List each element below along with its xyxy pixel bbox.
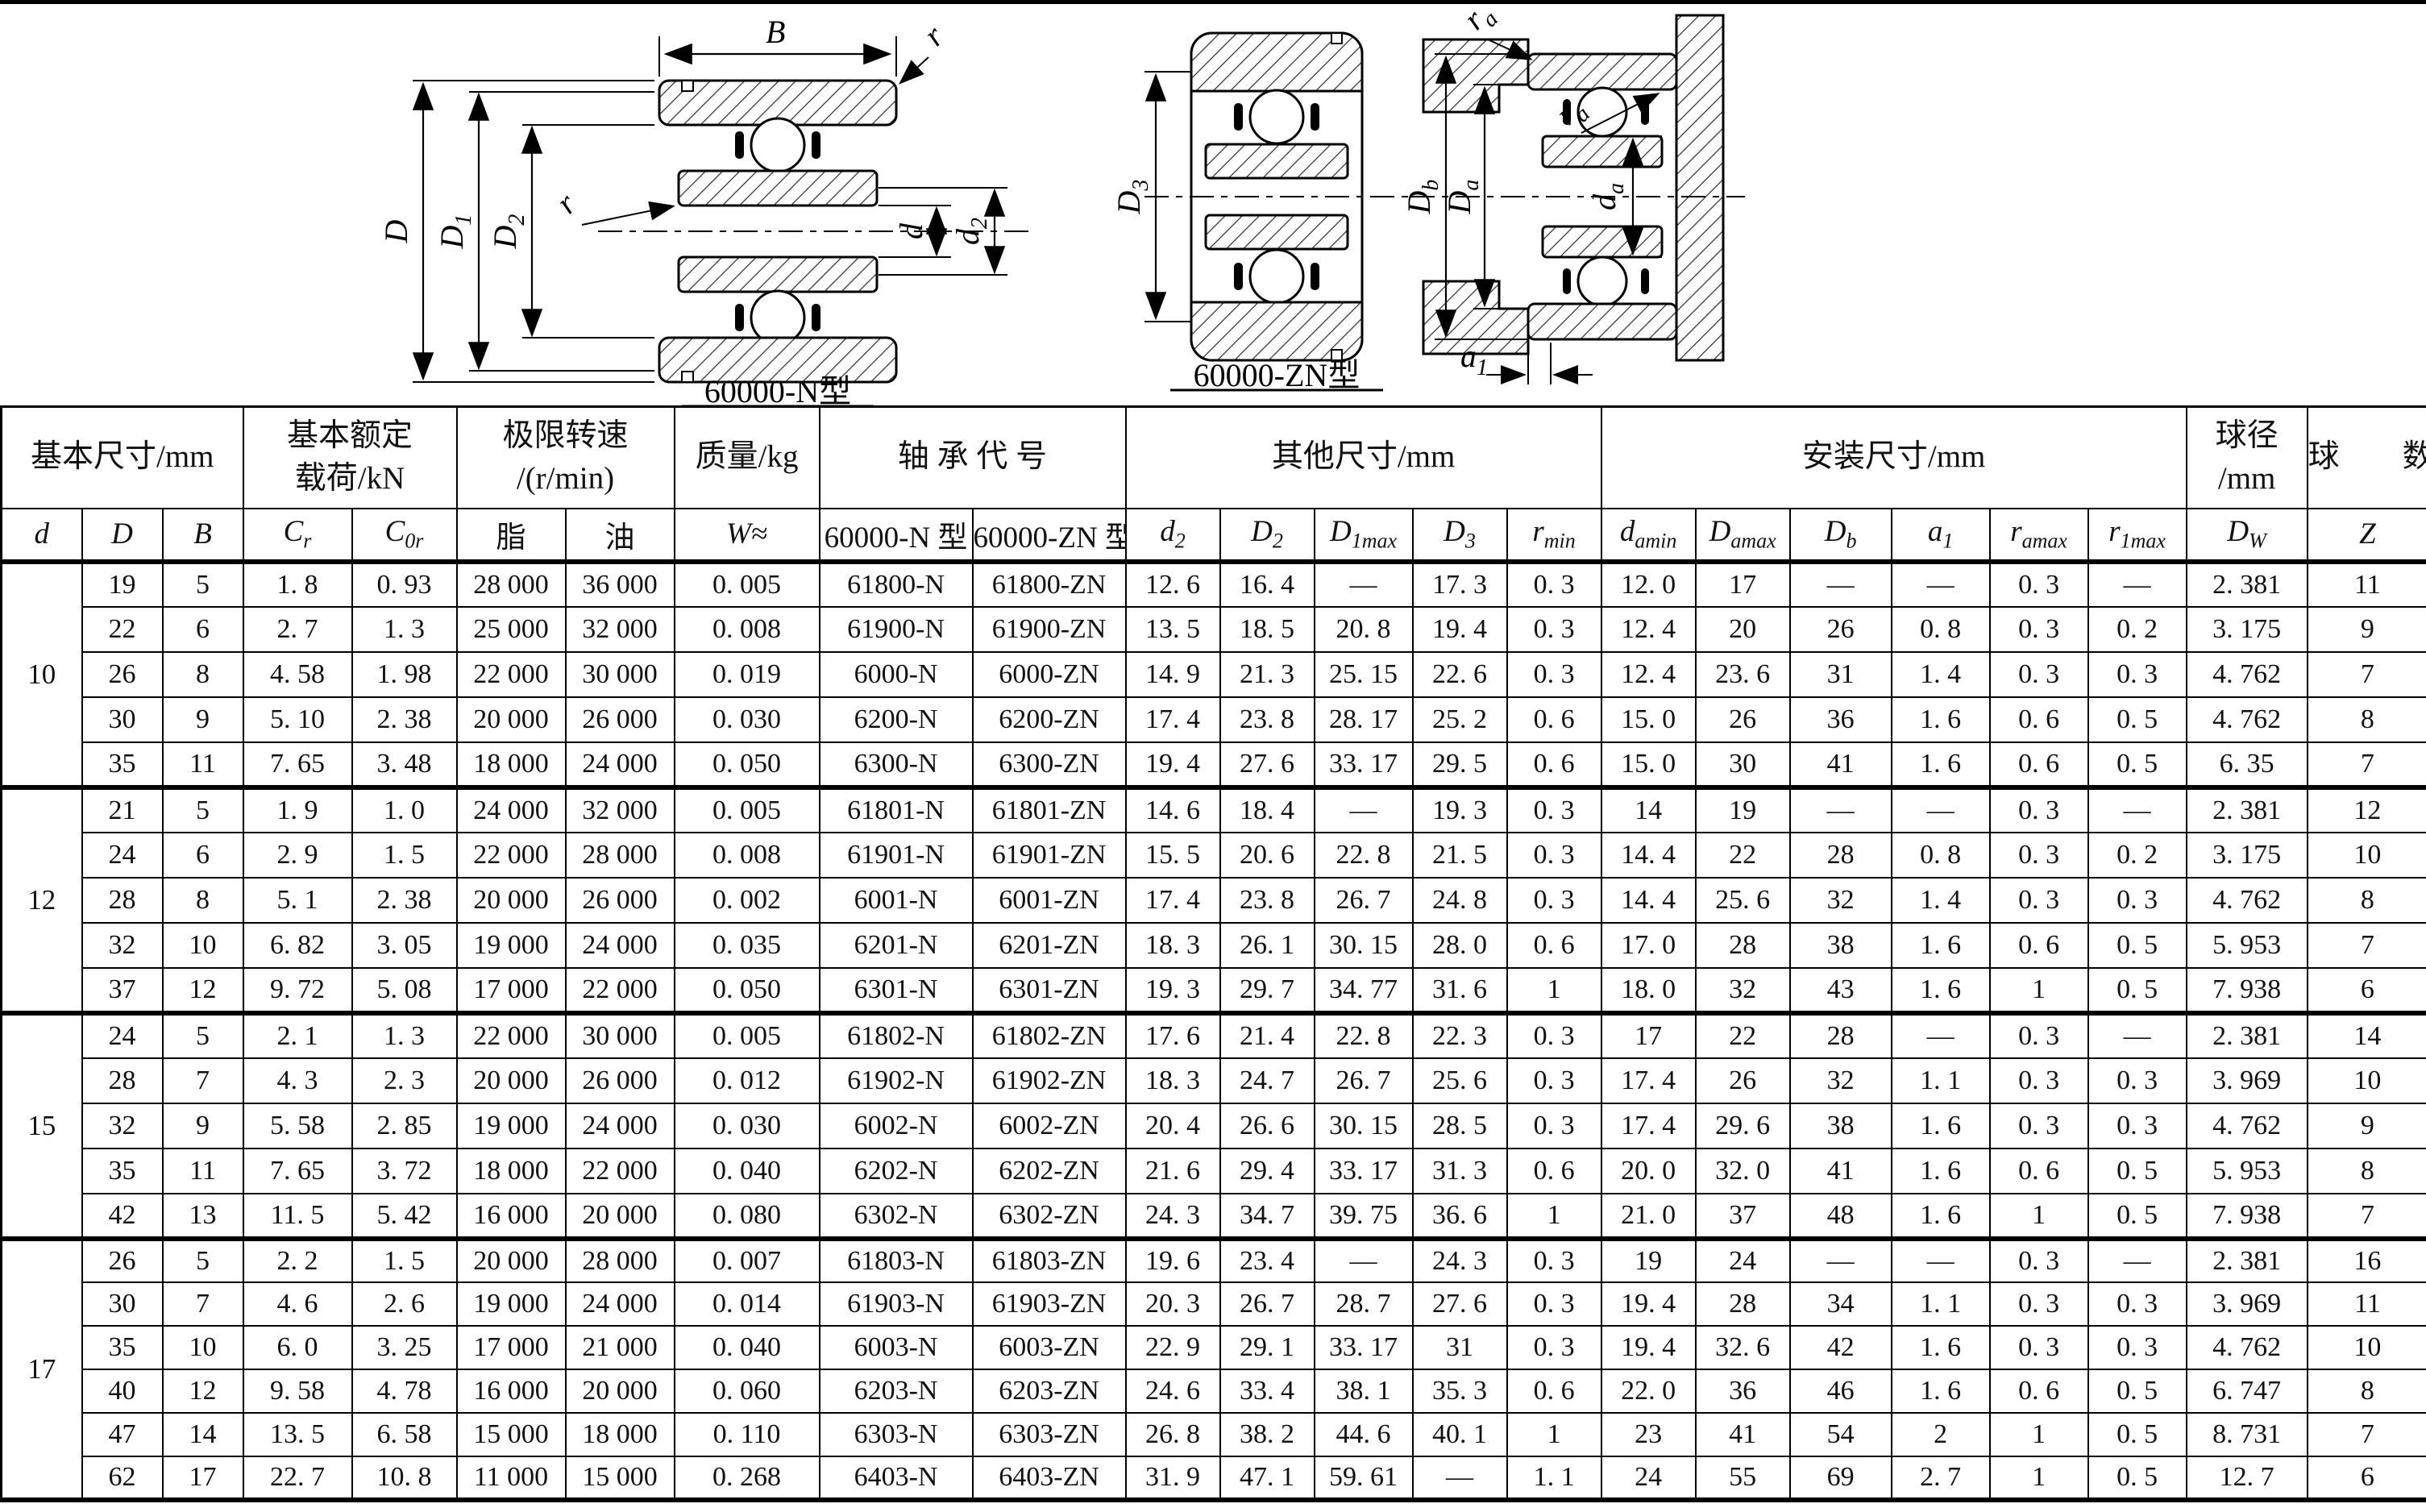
cell: 4. 762 <box>2187 697 2308 742</box>
cell: 22 <box>1696 833 1790 878</box>
column-header-cell: ramax <box>1990 509 2088 562</box>
cell: 9. 72 <box>243 968 352 1013</box>
cell: 0. 5 <box>2088 697 2187 742</box>
cell: 1. 6 <box>1892 968 1990 1013</box>
cell: 12 <box>2308 787 2426 833</box>
cell: 61901-ZN <box>973 833 1126 878</box>
column-header-cell: DW <box>2187 509 2308 562</box>
group-header-cell: 其他尺寸/mm <box>1126 407 1601 509</box>
cell: 7. 938 <box>2187 1194 2308 1239</box>
column-header-cell: d2 <box>1126 509 1220 562</box>
cell: 0. 6 <box>1990 923 2088 968</box>
cell: 12. 7 <box>2187 1456 2308 1500</box>
cell: 29. 7 <box>1220 968 1315 1013</box>
cell: 40 <box>82 1369 163 1413</box>
cell: 61801-N <box>820 787 973 833</box>
cell: 17. 0 <box>1601 923 1696 968</box>
cell: 69 <box>1790 1456 1892 1500</box>
cell: 32 <box>82 1103 163 1149</box>
cell: 3. 05 <box>352 923 457 968</box>
cell: 17. 3 <box>1413 562 1507 607</box>
cell: 36 <box>1696 1369 1790 1413</box>
cell: 20 000 <box>457 1239 566 1282</box>
cell: 20 000 <box>566 1194 675 1239</box>
table-row: 471413. 56. 5815 00018 0000. 1106303-N63… <box>2 1413 2426 1456</box>
cell: 0. 008 <box>675 607 820 652</box>
cell: 20 000 <box>566 1369 675 1413</box>
cell: 0. 3 <box>1507 652 1601 697</box>
cell: 37 <box>82 968 163 1013</box>
cell: 0. 035 <box>675 923 820 968</box>
cell: 21. 5 <box>1413 833 1507 878</box>
cell: 26. 1 <box>1220 923 1315 968</box>
cell: 22 000 <box>457 833 566 878</box>
cell: 55 <box>1696 1456 1790 1500</box>
cell: 33. 4 <box>1220 1369 1315 1413</box>
cell: 0. 3 <box>1990 833 2088 878</box>
column-header-cell: 60000-ZN 型 <box>973 509 1126 562</box>
cell: 21 000 <box>566 1326 675 1369</box>
group-header-cell: 轴 承 代 号 <box>820 407 1126 509</box>
cell: 1. 98 <box>352 652 457 697</box>
cell: 10. 8 <box>352 1456 457 1500</box>
cell: 2 <box>1892 1413 1990 1456</box>
cell: 1 <box>1990 968 2088 1013</box>
column-header-cell: Db <box>1790 509 1892 562</box>
cell: 14 <box>163 1413 243 1456</box>
cell: 29. 5 <box>1413 742 1507 787</box>
cell: 16 <box>2308 1239 2426 1282</box>
group-header-cell: 基本尺寸/mm <box>2 407 243 509</box>
cell: 1. 6 <box>1892 1326 1990 1369</box>
cell: 26. 7 <box>1315 1058 1413 1103</box>
cell: 6403-ZN <box>973 1456 1126 1500</box>
cell: 25. 2 <box>1413 697 1507 742</box>
cell: 9 <box>2308 1103 2426 1149</box>
cell: 21. 6 <box>1126 1149 1220 1194</box>
cell: 0. 3 <box>1507 607 1601 652</box>
cell: 18 000 <box>457 1149 566 1194</box>
cell: 21. 0 <box>1601 1194 1696 1239</box>
cell: 0. 6 <box>1990 697 2088 742</box>
cell: 0. 8 <box>1892 607 1990 652</box>
cell: 61803-ZN <box>973 1239 1126 1282</box>
cell: 5. 10 <box>243 697 352 742</box>
cell: 1. 5 <box>352 1239 457 1282</box>
cell: 23. 8 <box>1220 878 1315 923</box>
cell: 28. 5 <box>1413 1103 1507 1149</box>
cell: 14. 4 <box>1601 878 1696 923</box>
cell: 6001-N <box>820 878 973 923</box>
cell: 29. 6 <box>1696 1103 1790 1149</box>
cell: 20. 0 <box>1601 1149 1696 1194</box>
column-header-cell: C0r <box>352 509 457 562</box>
cell: 31 <box>1413 1326 1507 1369</box>
cell: 62 <box>82 1456 163 1500</box>
cell: 28 000 <box>566 833 675 878</box>
cell: 0. 6 <box>1507 742 1601 787</box>
cell: 18. 4 <box>1220 787 1315 833</box>
dim-ra-top-label: ra <box>1456 4 1503 41</box>
cell: 24. 8 <box>1413 878 1507 923</box>
cell: 17. 6 <box>1126 1013 1220 1058</box>
cell: 29. 4 <box>1220 1149 1315 1194</box>
cell: 12. 6 <box>1126 562 1220 607</box>
cell: 18. 3 <box>1126 1058 1220 1103</box>
cell: 0. 5 <box>2088 742 2187 787</box>
cell: 8 <box>2308 697 2426 742</box>
cell: 11 <box>2308 562 2426 607</box>
cell: 0. 030 <box>675 1103 820 1149</box>
cell: 17 <box>163 1456 243 1500</box>
cell: 0. 3 <box>2088 1282 2187 1326</box>
cell: 0. 2 <box>2088 833 2187 878</box>
dim-d2-label: d2 <box>949 218 992 245</box>
cell: 7 <box>163 1058 243 1103</box>
cell: 8. 731 <box>2187 1413 2308 1456</box>
cell: 47 <box>82 1413 163 1456</box>
cell: 6. 58 <box>352 1413 457 1456</box>
table-row: 621722. 710. 811 00015 0000. 2686403-N64… <box>2 1456 2426 1500</box>
cell: 12 <box>163 968 243 1013</box>
cell: 5 <box>163 1013 243 1058</box>
cell: 48 <box>1790 1194 1892 1239</box>
cell: 19. 4 <box>1126 742 1220 787</box>
cell: 0. 5 <box>2088 923 2187 968</box>
cell: 15. 0 <box>1601 697 1696 742</box>
cell: 41 <box>1790 1149 1892 1194</box>
cell: — <box>1892 562 1990 607</box>
cell: 17 <box>1696 562 1790 607</box>
cell: 19. 4 <box>1601 1282 1696 1326</box>
cell: 26. 6 <box>1220 1103 1315 1149</box>
cell: 22 000 <box>566 968 675 1013</box>
cell: 8 <box>163 878 243 923</box>
cell: 0. 030 <box>675 697 820 742</box>
cell: 27. 6 <box>1220 742 1315 787</box>
cell-bore-d: 17 <box>2 1239 82 1500</box>
cell: 61901-N <box>820 833 973 878</box>
cell: 22 000 <box>457 1013 566 1058</box>
cell: 35 <box>82 1149 163 1194</box>
cell: 4. 78 <box>352 1369 457 1413</box>
cell: 61903-ZN <box>973 1282 1126 1326</box>
cell: 3. 175 <box>2187 833 2308 878</box>
column-header-cell: damin <box>1601 509 1696 562</box>
cell: 59. 61 <box>1315 1456 1413 1500</box>
cell: 28 <box>1696 1282 1790 1326</box>
cell: 6 <box>2308 1456 2426 1500</box>
cell: 41 <box>1696 1413 1790 1456</box>
column-header-cell: Damax <box>1696 509 1790 562</box>
cell: 22 000 <box>566 1149 675 1194</box>
cell: 21. 3 <box>1220 652 1315 697</box>
cell: 36 000 <box>566 562 675 607</box>
cell: 12. 4 <box>1601 607 1696 652</box>
cell: 0. 3 <box>1990 652 2088 697</box>
column-header-cell: r1max <box>2088 509 2187 562</box>
table-row: 2885. 12. 3820 00026 0000. 0026001-N6001… <box>2 878 2426 923</box>
cell: 0. 6 <box>1507 923 1601 968</box>
cell: 32 <box>1790 878 1892 923</box>
cell: 27. 6 <box>1413 1282 1507 1326</box>
cell: 32. 6 <box>1696 1326 1790 1369</box>
cell: 6200-N <box>820 697 973 742</box>
cell: 2. 3 <box>352 1058 457 1103</box>
cell: 34 <box>1790 1282 1892 1326</box>
cell: 39. 75 <box>1315 1194 1413 1239</box>
cell: 0. 8 <box>1892 833 1990 878</box>
cell: 0. 3 <box>1507 1058 1601 1103</box>
cell: 6 <box>163 833 243 878</box>
table-row: 35106. 03. 2517 00021 0000. 0406003-N600… <box>2 1326 2426 1369</box>
cell: 11. 5 <box>243 1194 352 1239</box>
cell: 42 <box>1790 1326 1892 1369</box>
column-header-cell: 脂 <box>457 509 566 562</box>
dim-Db-label: Db <box>1401 180 1444 215</box>
cell: 38 <box>1790 1103 1892 1149</box>
cell: 35. 3 <box>1413 1369 1507 1413</box>
cell: 2. 7 <box>243 607 352 652</box>
cell: 2. 9 <box>243 833 352 878</box>
cell: 61801-ZN <box>973 787 1126 833</box>
cell: 5. 42 <box>352 1194 457 1239</box>
cell: 20 000 <box>457 878 566 923</box>
cell: 33. 17 <box>1315 1326 1413 1369</box>
cell: 11 <box>163 742 243 787</box>
cell: 2. 2 <box>243 1239 352 1282</box>
cell: 0. 93 <box>352 562 457 607</box>
cell: 6. 82 <box>243 923 352 968</box>
cell: 1. 6 <box>1892 1369 1990 1413</box>
cell: 17. 4 <box>1126 697 1220 742</box>
cell: 12. 0 <box>1601 562 1696 607</box>
cell: 13. 5 <box>243 1413 352 1456</box>
cell: 1. 5 <box>352 833 457 878</box>
cell: 1. 6 <box>1892 1103 1990 1149</box>
cell: 20. 6 <box>1220 833 1315 878</box>
cell: 11 <box>163 1149 243 1194</box>
cell: — <box>1413 1456 1507 1500</box>
cell: 4. 762 <box>2187 1103 2308 1149</box>
table-row: 37129. 725. 0817 00022 0000. 0506301-N63… <box>2 968 2426 1013</box>
cell: 6003-ZN <box>973 1326 1126 1369</box>
cell: 47. 1 <box>1220 1456 1315 1500</box>
cell: 5. 953 <box>2187 1149 2308 1194</box>
dim-B-label: B <box>766 14 785 50</box>
cell: 30 <box>82 1282 163 1326</box>
cell: 26 <box>1790 607 1892 652</box>
cell: 0. 040 <box>675 1149 820 1194</box>
cell: 28 <box>1790 833 1892 878</box>
cell: 1. 8 <box>243 562 352 607</box>
cell: 23. 4 <box>1220 1239 1315 1282</box>
group-header-cell: 球径/mm <box>2187 407 2308 509</box>
cell: 30 000 <box>566 1013 675 1058</box>
cell: 5. 953 <box>2187 923 2308 968</box>
cell: 61900-N <box>820 607 973 652</box>
cell: 26. 8 <box>1126 1413 1220 1456</box>
cell: 19. 4 <box>1413 607 1507 652</box>
cell: 30. 15 <box>1315 1103 1413 1149</box>
cell: 61803-N <box>820 1239 973 1282</box>
cell: 4. 58 <box>243 652 352 697</box>
cell: 9 <box>163 1103 243 1149</box>
cell: 38. 2 <box>1220 1413 1315 1456</box>
cell: 12. 4 <box>1601 652 1696 697</box>
cell: 0. 3 <box>2088 652 2187 697</box>
cell: 1. 1 <box>1892 1058 1990 1103</box>
dim-r-top-label: r <box>916 18 951 52</box>
cell: 7 <box>2308 652 2426 697</box>
cell: 28 <box>82 878 163 923</box>
dim-d-label: d <box>893 222 929 239</box>
cell: 31. 6 <box>1413 968 1507 1013</box>
cell: 6. 0 <box>243 1326 352 1369</box>
column-header-cell: a1 <box>1892 509 1990 562</box>
cell: 6302-N <box>820 1194 973 1239</box>
cell: 1. 9 <box>243 787 352 833</box>
cell: 6301-N <box>820 968 973 1013</box>
cell: 0. 3 <box>1990 607 2088 652</box>
cell: 0. 005 <box>675 562 820 607</box>
cell: 18. 0 <box>1601 968 1696 1013</box>
catalog-page: B r r D <box>0 0 2426 1512</box>
cell: 6000-N <box>820 652 973 697</box>
cell: 6. 35 <box>2187 742 2308 787</box>
cell: 36 <box>1790 697 1892 742</box>
cell: 0. 6 <box>1990 1369 2088 1413</box>
cell: 0. 3 <box>1507 1239 1601 1282</box>
cell: 7 <box>2308 742 2426 787</box>
group-header-cell: 安装尺寸/mm <box>1601 407 2187 509</box>
cell: 0. 012 <box>675 1058 820 1103</box>
cell: 22. 8 <box>1315 833 1413 878</box>
cell-bore-d: 15 <box>2 1013 82 1239</box>
cell: 26. 7 <box>1315 878 1413 923</box>
cell: 19 000 <box>457 1282 566 1326</box>
cell: 26 000 <box>566 878 675 923</box>
cell: 17. 4 <box>1126 878 1220 923</box>
table-row: 3095. 102. 3820 00026 0000. 0306200-N620… <box>2 697 2426 742</box>
table-body: 101951. 80. 9328 00036 0000. 00561800-N6… <box>2 562 2426 1500</box>
cell: 36. 6 <box>1413 1194 1507 1239</box>
cell: 0. 3 <box>1507 1013 1601 1058</box>
table-row: 35117. 653. 7218 00022 0000. 0406202-N62… <box>2 1149 2426 1194</box>
column-header-cell: Z <box>2308 509 2426 562</box>
cell: 4. 6 <box>243 1282 352 1326</box>
cell: 0. 3 <box>1990 1282 2088 1326</box>
table-row: 35117. 653. 4818 00024 0000. 0506300-N63… <box>2 742 2426 787</box>
cell: 0. 3 <box>2088 1058 2187 1103</box>
cell: 3. 175 <box>2187 607 2308 652</box>
diagram-60000-zn: D3 60000-ZN型 <box>1111 33 1414 393</box>
cell: 35 <box>82 1326 163 1369</box>
dim-D1-label: D1 <box>434 214 476 250</box>
cell: 38 <box>1790 923 1892 968</box>
cell: 32. 0 <box>1696 1149 1790 1194</box>
column-header-cell: Cr <box>243 509 352 562</box>
cell: 22. 9 <box>1126 1326 1220 1369</box>
cell: 1. 3 <box>352 607 457 652</box>
cell: 24. 7 <box>1220 1058 1315 1103</box>
cell: 25 000 <box>457 607 566 652</box>
group-header-cell: 球 数 <box>2308 407 2426 509</box>
cell: 1 <box>1990 1194 2088 1239</box>
cell: 24 <box>82 833 163 878</box>
cell: 9. 58 <box>243 1369 352 1413</box>
cell: 1. 6 <box>1892 923 1990 968</box>
cell: 22 000 <box>457 652 566 697</box>
cell: 26 <box>82 652 163 697</box>
cell: 0. 2 <box>2088 607 2187 652</box>
cell: 31. 9 <box>1126 1456 1220 1500</box>
cell: 7 <box>2308 1413 2426 1456</box>
cell: 0. 5 <box>2088 968 2187 1013</box>
cell: 5. 1 <box>243 878 352 923</box>
cell: 6300-ZN <box>973 742 1126 787</box>
cell: 43 <box>1790 968 1892 1013</box>
cell: 15 000 <box>457 1413 566 1456</box>
cell: — <box>1892 1239 1990 1282</box>
cell: 0. 3 <box>1990 1013 2088 1058</box>
table-row: 40129. 584. 7816 00020 0000. 0606203-N62… <box>2 1369 2426 1413</box>
cell: 1 <box>1990 1456 2088 1500</box>
cell: 22. 0 <box>1601 1369 1696 1413</box>
cell: 61800-N <box>820 562 973 607</box>
cell: 0. 050 <box>675 742 820 787</box>
cell: 26 <box>1696 697 1790 742</box>
cell: 1. 6 <box>1892 742 1990 787</box>
cell: 24 000 <box>566 1282 675 1326</box>
dim-r-left-label: r <box>549 185 584 220</box>
cell: 32 <box>82 923 163 968</box>
cell: 26 <box>1696 1058 1790 1103</box>
cell: 4. 762 <box>2187 1326 2308 1369</box>
cell: 26 <box>82 1239 163 1282</box>
cell: 28 000 <box>457 562 566 607</box>
cell: 26 000 <box>566 697 675 742</box>
cell: 3. 969 <box>2187 1058 2308 1103</box>
cell: 20. 3 <box>1126 1282 1220 1326</box>
cell: 30. 15 <box>1315 923 1413 968</box>
diagram-label-60000-zn: 60000-ZN型 <box>1194 357 1360 393</box>
cell: 1 <box>1990 1413 2088 1456</box>
cell: 41 <box>1790 742 1892 787</box>
cell: 61800-ZN <box>973 562 1126 607</box>
cell: 0. 3 <box>1507 1326 1601 1369</box>
cell: 21. 4 <box>1220 1013 1315 1058</box>
cell: 5 <box>163 1239 243 1282</box>
cell: 2. 381 <box>2187 1239 2308 1282</box>
cell: 30 000 <box>566 652 675 697</box>
cell-bore-d: 12 <box>2 787 82 1013</box>
cell: — <box>1790 562 1892 607</box>
cell: — <box>2088 1239 2187 1282</box>
cell: 40. 1 <box>1413 1413 1507 1456</box>
cell: 26 000 <box>566 1058 675 1103</box>
cell: — <box>2088 1013 2187 1058</box>
cell: 1 <box>1507 1194 1601 1239</box>
group-header-cell: 极限转速/(r/min) <box>457 407 675 509</box>
cell: 6403-N <box>820 1456 973 1500</box>
diagram-mounting: Db Da da ra ra <box>1401 4 1745 384</box>
cell: 6 <box>2308 968 2426 1013</box>
cell: 14. 6 <box>1126 787 1220 833</box>
cell: 34. 77 <box>1315 968 1413 1013</box>
cell: 6203-N <box>820 1369 973 1413</box>
cell: 9 <box>163 697 243 742</box>
